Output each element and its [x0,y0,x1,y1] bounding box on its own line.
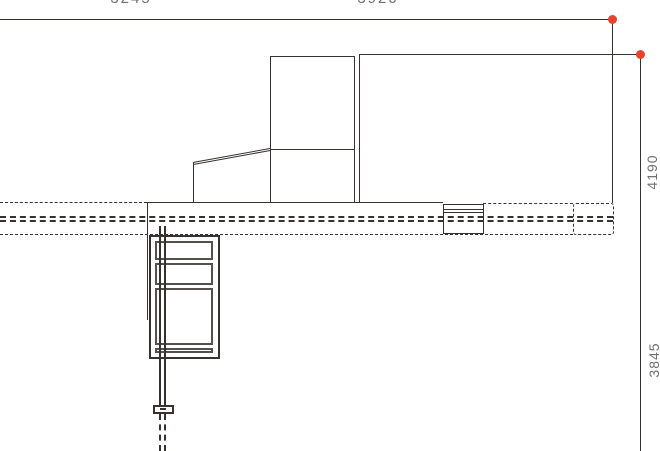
counter-top-line [147,202,443,203]
dashed-duct-box [573,203,614,235]
drawing-canvas[interactable]: 3245 3920 4190 3845 [0,0,660,451]
dim-label-right-upper: 4190 [644,141,660,203]
post-centerline-dashed-right [164,414,166,451]
counter-dashed-mid [483,203,573,204]
extension-line-right-long [640,54,641,451]
dim-label-top-center: 3920 [350,0,406,7]
dimension-line-upper [0,19,613,20]
wall-line [147,203,148,320]
hood-slope-line [193,148,271,165]
dim-label-right-lower: 3845 [646,329,660,391]
post-foot-mark [160,408,166,410]
vent-slat-line-1 [444,209,483,210]
dimension-line-lower [360,54,641,55]
dimension-grip-dot-upper[interactable] [608,15,617,24]
dimension-grip-dot-lower[interactable] [636,50,645,59]
beam-double-dashed-upper [0,216,613,218]
hood-left-edge [193,163,194,203]
post-centerline-dashed-left [159,414,161,451]
counter-dashed-left [0,202,147,203]
counter-bottom-dashed [0,234,573,235]
hood-chimney-outline [270,56,355,203]
support-post-right-line [164,226,166,406]
hood-right-panel-line [359,54,360,203]
hood-divider-line [270,149,355,150]
vent-slat-line-2 [444,212,483,213]
beam-double-dashed-lower [0,220,613,222]
dim-label-top-left: 3245 [103,0,159,7]
extension-line-upper [612,19,613,203]
support-post-left-line [159,226,161,406]
